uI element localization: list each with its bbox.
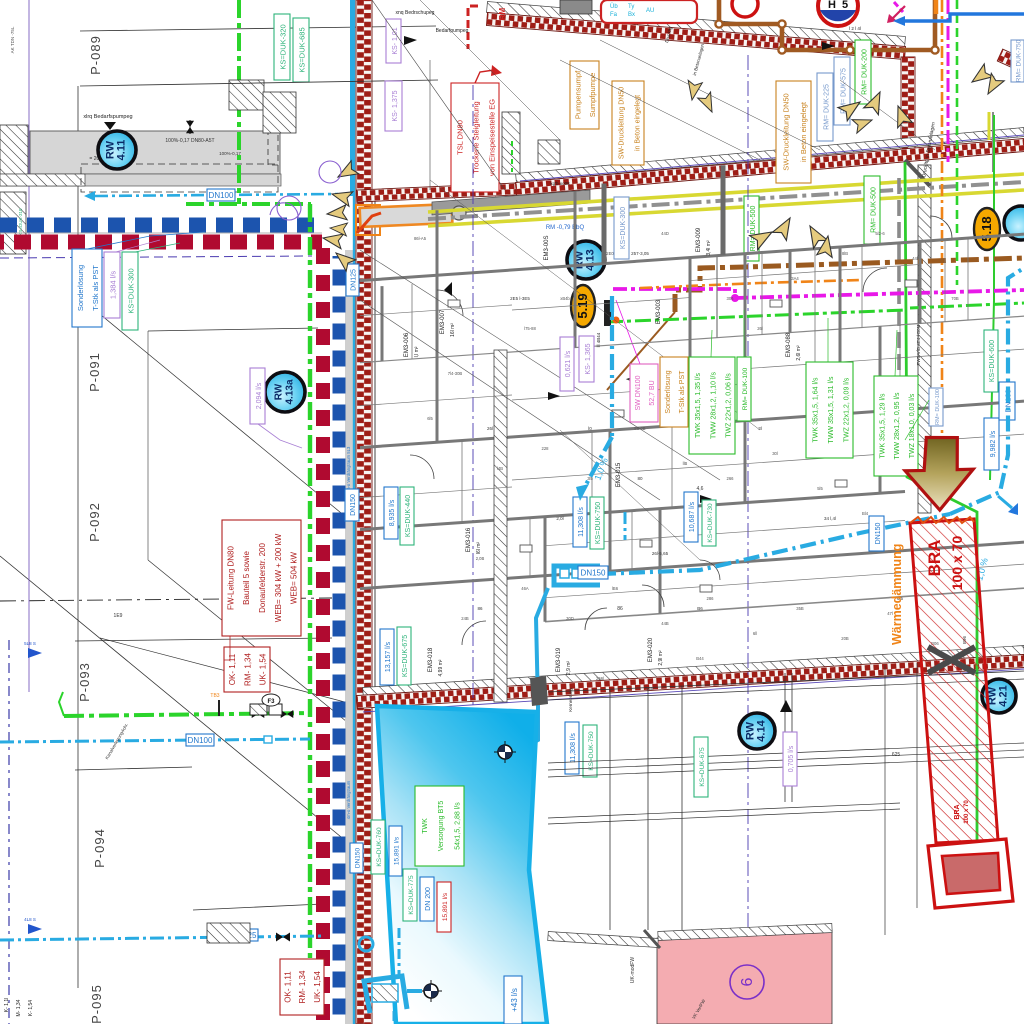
svg-text:26l-5,65: 26l-5,65: [652, 551, 669, 556]
svg-text:B44: B44: [696, 656, 704, 661]
svg-text:BRA: BRA: [925, 540, 944, 577]
svg-text:1,384 l/s: 1,384 l/s: [109, 271, 118, 300]
svg-text:SW-Druckleitung DN50: SW-Druckleitung DN50: [619, 87, 626, 159]
svg-text:KS=DUK-775: KS=DUK-775: [408, 875, 415, 915]
svg-text:80: 80: [637, 476, 643, 481]
svg-text:Pumpensumpf: Pumpensumpf: [573, 70, 582, 119]
svg-text:FW-Leitung DN80: FW-Leitung DN80: [226, 546, 235, 610]
svg-text:4.13: 4.13: [585, 249, 597, 270]
svg-text:KS=DUK-320: KS=DUK-320: [279, 24, 288, 69]
svg-text:KS- 1,01: KS- 1,01: [392, 27, 399, 54]
svg-text:UK- 1,54: UK- 1,54: [259, 653, 268, 685]
svg-text:KS=DUK-300: KS=DUK-300: [127, 268, 136, 313]
svg-text:in Beton eingelegt: in Beton eingelegt: [799, 101, 808, 162]
svg-text:4m-o Verdrängtraum 5L3: 4m-o Verdrängtraum 5L3: [346, 446, 351, 493]
svg-text:Bx: Bx: [628, 12, 635, 18]
svg-text:KS=DUK-750: KS=DUK-750: [588, 731, 595, 771]
svg-text:86: 86: [477, 606, 483, 611]
svg-text:KS=DUK-760: KS=DUK-760: [376, 827, 383, 867]
svg-text:Wärmedämmung: Wärmedämmung: [890, 544, 904, 645]
svg-text:l0: l0: [588, 426, 592, 431]
svg-text:11,308 l/s: 11,308 l/s: [578, 507, 585, 537]
svg-text:P-091: P-091: [87, 352, 102, 392]
svg-text:100 x 70: 100 x 70: [964, 800, 970, 824]
svg-text:TWW 28x1,2, 0,95 l/s: TWW 28x1,2, 0,95 l/s: [894, 392, 901, 459]
svg-text:2,6l m²: 2,6l m²: [796, 345, 802, 361]
svg-text:5l5: 5l5: [817, 486, 823, 491]
svg-text:2,094 l/s: 2,094 l/s: [256, 382, 263, 409]
svg-text:kg'b-xo08: kg'b-xo08: [550, 181, 570, 186]
svg-text:xB4b: xB4b: [560, 296, 570, 301]
svg-text:EM3-009: EM3-009: [696, 227, 702, 252]
svg-text:B6: B6: [697, 606, 703, 611]
svg-text:46A: 46A: [521, 586, 529, 591]
svg-text:5L8 S: 5L8 S: [24, 641, 36, 646]
svg-text:OK- 1,11: OK- 1,11: [284, 971, 293, 1003]
svg-text:86-0B: 86-0B: [634, 426, 645, 431]
svg-text:4L8 S: 4L8 S: [24, 917, 36, 922]
svg-text:KS=DUK-685: KS=DUK-685: [298, 27, 307, 72]
svg-text:3l: 3l: [758, 426, 762, 431]
svg-text:TWZ 18x1,0, 0,03 l/s: TWZ 18x1,0, 0,03 l/s: [909, 393, 916, 458]
svg-text:2,0B: 2,0B: [476, 556, 485, 561]
svg-text:AU: AU: [646, 8, 654, 14]
svg-text:Sonderlösung: Sonderlösung: [665, 370, 672, 413]
svg-text:l6l m²: l6l m²: [476, 542, 482, 555]
svg-text:EM3-018: EM3-018: [428, 647, 434, 672]
svg-text:TW5-VfD 4E4-l B0M: TW5-VfD 4E4-l B0M: [916, 324, 921, 365]
svg-text:T-Stk als PST: T-Stk als PST: [91, 265, 100, 311]
svg-text:44D: 44D: [661, 231, 669, 236]
svg-text:KS=DUK-730: KS=DUK-730: [707, 503, 714, 543]
svg-text:2E0: 2E0: [606, 251, 614, 256]
svg-text:DN150: DN150: [581, 568, 606, 577]
svg-text:lB6: lB6: [612, 586, 619, 591]
svg-text:2,9l m²: 2,9l m²: [658, 650, 664, 666]
svg-text:H: H: [828, 0, 836, 11]
svg-text:EM3-00S: EM3-00S: [544, 235, 550, 260]
svg-text:34 l,4l: 34 l,4l: [824, 516, 836, 521]
svg-text:10,687 l/s: 10,687 l/s: [689, 501, 696, 532]
svg-text:B96: B96: [962, 636, 967, 645]
svg-text:RM= DUK-200: RM= DUK-200: [862, 49, 869, 95]
svg-text:von Einspeisestelle EG: von Einspeisestelle EG: [488, 99, 497, 176]
svg-text:86l-A5: 86l-A5: [414, 236, 427, 241]
svg-text:228: 228: [542, 446, 550, 451]
svg-text:30l: 30l: [772, 451, 778, 456]
svg-text:52,7 BU: 52,7 BU: [649, 380, 656, 405]
svg-text:KS=DUK-440: KS=DUK-440: [405, 495, 412, 537]
svg-text:86: 86: [617, 606, 623, 612]
svg-text:4,99 m²: 4,99 m²: [438, 659, 444, 676]
svg-text:K- 1,1l: K- 1,1l: [4, 998, 10, 1012]
svg-text:306: 306: [727, 296, 735, 301]
svg-text:100%-0,17 DN80-A5T: 100%-0,17 DN80-A5T: [165, 138, 214, 144]
svg-text:xlrq Bedarfspumpeg: xlrq Bedarfspumpeg: [83, 114, 132, 120]
svg-text:DN150: DN150: [875, 523, 882, 545]
svg-text:54x1,5, 2,88 l/s: 54x1,5, 2,88 l/s: [454, 802, 461, 850]
svg-text:8lB: 8lB: [842, 251, 848, 256]
svg-text:xnq Bedrschupeg: xnq Bedrschupeg: [396, 10, 435, 16]
svg-text:5l2-6: 5l2-6: [875, 231, 885, 236]
svg-text:2,0l: 2,0l: [556, 516, 563, 521]
svg-text:EM3-007: EM3-007: [440, 309, 446, 334]
svg-text:M- 1,34: M- 1,34: [16, 999, 22, 1016]
svg-text:EM3-016: EM3-016: [466, 527, 472, 552]
svg-text:3A4: 3A4: [791, 276, 799, 281]
svg-text:625: 625: [892, 752, 901, 758]
svg-text:4.14: 4.14: [756, 719, 768, 741]
svg-text:EM3-015: EM3-015: [616, 462, 622, 487]
svg-text:70B: 70B: [951, 296, 959, 301]
svg-text:RM: RM: [498, 7, 507, 20]
svg-text:KS=DUK-310: KS=DUK-310: [18, 208, 23, 236]
svg-text:KS- 1,365: KS- 1,365: [585, 343, 592, 374]
svg-text:Fa: Fa: [610, 12, 618, 18]
svg-text:44l: 44l: [912, 256, 918, 261]
svg-text:RM -0,79 BbQ: RM -0,79 BbQ: [546, 225, 585, 231]
svg-text:1E9: 1E9: [114, 613, 123, 619]
svg-text:P-093: P-093: [77, 662, 92, 702]
svg-text:DN150: DN150: [350, 494, 357, 516]
svg-text:SW-Druckleitung DN50: SW-Druckleitung DN50: [782, 93, 791, 170]
svg-text:TWW 35x1,5, 1,31 l/s: TWW 35x1,5, 1,31 l/s: [828, 376, 835, 443]
svg-text:26l: 26l: [757, 326, 763, 331]
svg-text:BRA: BRA: [954, 804, 961, 819]
svg-text:l,l m²: l,l m²: [414, 346, 420, 357]
svg-text:44B: 44B: [661, 621, 669, 626]
svg-text:Sumpfpumpe: Sumpfpumpe: [588, 73, 597, 118]
svg-text:l4B: l4B: [497, 466, 503, 471]
svg-text:WEB= 504 kW: WEB= 504 kW: [290, 551, 299, 604]
svg-text:16l m²: 16l m²: [450, 323, 456, 337]
svg-text:RM= DUK-750: RM= DUK-750: [1015, 39, 1022, 82]
svg-text:TWK 35x1,5, 1,64 l/s: TWK 35x1,5, 1,64 l/s: [812, 377, 819, 442]
svg-text:Bauteil 5 sowie: Bauteil 5 sowie: [242, 551, 251, 605]
svg-text:11,308 l/s: 11,308 l/s: [570, 733, 577, 763]
svg-text:30D: 30D: [566, 616, 574, 621]
svg-text:RM= DUK-225: RM= DUK-225: [824, 84, 831, 130]
svg-text:WEB= 304 kW + 200 kW: WEB= 304 kW + 200 kW: [274, 533, 283, 622]
svg-text:OK- 1,11: OK- 1,11: [228, 653, 237, 685]
svg-text:24B: 24B: [461, 616, 469, 621]
svg-text:UK- 1,54: UK- 1,54: [313, 971, 322, 1003]
svg-text:in Beton eingelegt: in Beton eingelegt: [635, 95, 642, 151]
svg-text:4.13a: 4.13a: [285, 379, 296, 404]
svg-text:15,891 l/s: 15,891 l/s: [393, 836, 400, 865]
svg-text:4,6: 4,6: [697, 486, 704, 492]
svg-text:KS=DUK-600: KS=DUK-600: [989, 340, 996, 382]
svg-text:EM3-006: EM3-006: [404, 332, 410, 357]
svg-text:KS- 1,375: KS- 1,375: [392, 90, 399, 121]
svg-text:2E5 l-3E5: 2E5 l-3E5: [510, 296, 530, 301]
svg-text:EM3-003: EM3-003: [656, 299, 662, 324]
svg-text:4.21: 4.21: [998, 685, 1010, 706]
svg-text:P-094: P-094: [92, 828, 107, 868]
svg-text:Ty: Ty: [628, 4, 634, 10]
svg-text:KS=DUK-675: KS=DUK-675: [402, 635, 409, 677]
svg-text:RM= DUK-100: RM= DUK-100: [742, 367, 749, 410]
svg-text:8,935 l/s: 8,935 l/s: [389, 499, 396, 526]
svg-text:100 x 70: 100 x 70: [949, 536, 965, 591]
svg-text:266l: 266l: [596, 676, 604, 681]
svg-text:KS=DUK-675: KS=DUK-675: [699, 747, 706, 787]
svg-text:DN100: DN100: [188, 736, 213, 745]
svg-text:Sonderlösung: Sonderlösung: [76, 265, 85, 311]
svg-text:RW: RW: [274, 383, 285, 400]
svg-text:DN 200: DN 200: [425, 887, 432, 911]
svg-text:KS=DUK-750: KS=DUK-750: [595, 502, 602, 544]
svg-text:35B: 35B: [646, 686, 654, 691]
svg-text:TWK 35x1,5, 1,29 l/s: TWK 35x1,5, 1,29 l/s: [880, 393, 887, 458]
svg-text:EM3-019: EM3-019: [556, 647, 562, 672]
svg-text:EM3-020: EM3-020: [648, 637, 654, 662]
svg-text:26l: 26l: [487, 426, 493, 431]
svg-text:TWZ 22x1,2, 0,06 l/s: TWZ 22x1,2, 0,06 l/s: [726, 373, 733, 438]
svg-text:2,9 m²: 2,9 m²: [566, 661, 572, 676]
svg-text:DN125: DN125: [350, 269, 357, 291]
svg-text:5: 5: [842, 0, 848, 11]
svg-text:286: 286: [707, 596, 715, 601]
svg-text:0,621 l/s: 0,621 l/s: [565, 350, 572, 377]
svg-text:AK TDN -75L: AK TDN -75L: [10, 26, 15, 53]
svg-text:l'l 4B44: l'l 4B44: [596, 332, 601, 347]
svg-text:EM3-088: EM3-088: [786, 332, 792, 357]
svg-text:0,705 l/s: 0,705 l/s: [788, 745, 795, 772]
svg-text:266: 266: [727, 476, 735, 481]
svg-text:Üb: Üb: [610, 3, 618, 10]
svg-text:UK-modFW: UK-modFW: [630, 957, 636, 983]
svg-text:Versorgung BT5: Versorgung BT5: [438, 801, 445, 852]
svg-text:Bedarfpumpeg: Bedarfpumpeg: [436, 28, 469, 34]
svg-text:P-089: P-089: [88, 35, 103, 75]
svg-text:TWK: TWK: [422, 818, 429, 834]
svg-text:T-Stk als PST: T-Stk als PST: [679, 370, 686, 414]
svg-text:RM- 1,34: RM- 1,34: [298, 970, 307, 1003]
svg-text:RM= DUK-500: RM= DUK-500: [750, 206, 757, 252]
svg-text:RM- 1,34: RM- 1,34: [243, 653, 252, 686]
svg-text:Bl4: Bl4: [862, 511, 869, 516]
svg-text:F3: F3: [267, 699, 275, 705]
svg-text:5.19: 5.19: [575, 293, 590, 318]
svg-text:l75-88: l75-88: [524, 326, 536, 331]
svg-text:RM= DUK-100: RM= DUK-100: [935, 389, 941, 425]
svg-text:6: 6: [739, 977, 756, 986]
svg-text:P-095: P-095: [89, 984, 104, 1024]
svg-text:TWK 35x1,5, 1,35 l/s: TWK 35x1,5, 1,35 l/s: [695, 373, 702, 438]
svg-text:13,157 l/s: 13,157 l/s: [385, 641, 392, 672]
svg-text:15,891 l/s: 15,891 l/s: [442, 892, 449, 921]
svg-text:6ll: 6ll: [753, 631, 757, 636]
svg-text:20B: 20B: [841, 636, 849, 641]
svg-text:4.11: 4.11: [116, 140, 128, 161]
svg-text:7l4-30B: 7l4-30B: [448, 371, 463, 376]
svg-text:DN150: DN150: [354, 847, 361, 868]
svg-text:TWW 28x1,2, 1,10 l/s: TWW 28x1,2, 1,10 l/s: [710, 372, 717, 439]
svg-text:257-3,05: 257-3,05: [631, 251, 649, 256]
svg-text:TB3: TB3: [210, 693, 219, 699]
svg-text:9,982 l/s: 9,982 l/s: [990, 430, 997, 457]
svg-text:P-092: P-092: [87, 502, 102, 542]
svg-text:4m-o Verdrängtraum: 4m-o Verdrängtraum: [346, 780, 351, 819]
svg-text:35B: 35B: [796, 606, 804, 611]
svg-text:DN100: DN100: [209, 191, 234, 200]
svg-text:llB: llB: [683, 461, 688, 466]
svg-text:3,4l m²: 3,4l m²: [706, 240, 712, 256]
svg-text:Donaufelderstr. 200: Donaufelderstr. 200: [258, 543, 267, 613]
svg-text:RM= DUK-500: RM= DUK-500: [871, 187, 878, 233]
svg-text:SW DN100: SW DN100: [635, 375, 642, 410]
svg-text:6l5: 6l5: [427, 416, 433, 421]
svg-text:l 2 l 4l: l 2 l 4l: [849, 26, 861, 31]
svg-text:K- 1,54: K- 1,54: [28, 1000, 34, 1016]
svg-text:+43 l/s: +43 l/s: [510, 988, 519, 1012]
svg-text:TWZ 22x1,2, 0,09 l/s: TWZ 22x1,2, 0,09 l/s: [844, 377, 851, 442]
svg-text:KS=DUK-300: KS=DUK-300: [620, 207, 627, 249]
